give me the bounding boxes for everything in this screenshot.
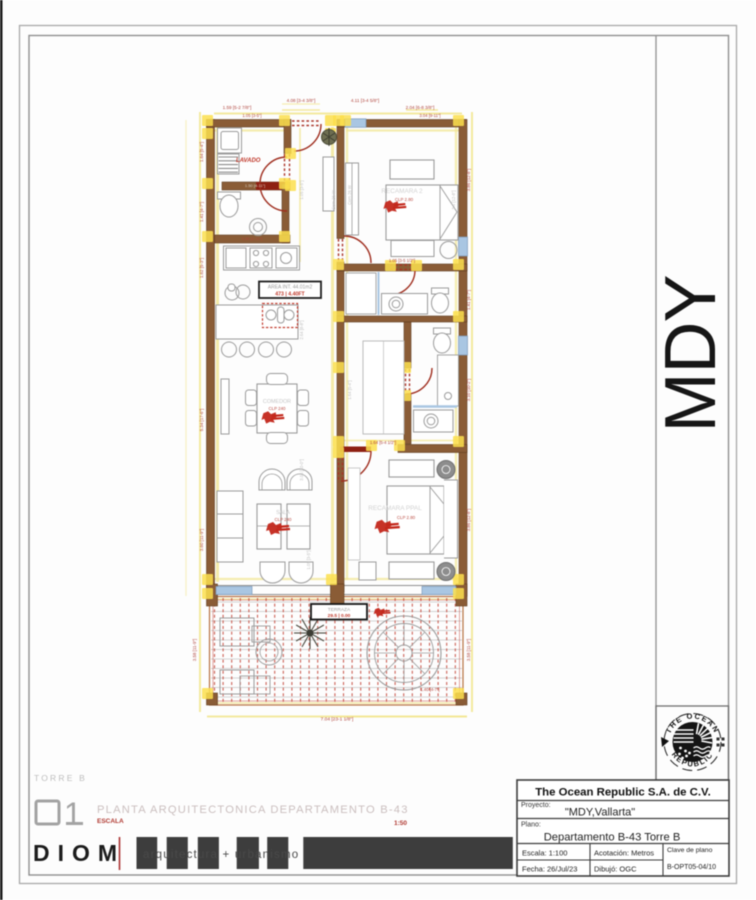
svg-text:DIOM: DIOM [33, 840, 125, 866]
svg-text:CLP 240: CLP 240 [268, 406, 286, 411]
svg-text:B-OPT05-04/10: B-OPT05-04/10 [667, 864, 716, 871]
svg-text:RECAMARA 2: RECAMARA 2 [381, 188, 423, 195]
svg-text:TORRE B: TORRE B [34, 773, 87, 783]
svg-text:Clave de plano: Clave de plano [667, 847, 713, 854]
svg-text:4.08 [3-4 3/8"]: 4.08 [3-4 3/8"] [287, 98, 316, 103]
svg-text:COMEDOR: COMEDOR [263, 399, 291, 405]
svg-text:473 | 4.40FT: 473 | 4.40FT [275, 292, 305, 298]
svg-text:ESCALA: ESCALA [97, 818, 124, 825]
svg-text:1: 1 [64, 796, 82, 832]
svg-text:3.05 [10-0"]: 3.05 [10-0"] [299, 459, 304, 481]
svg-text:1.64 [5-4"]: 1.64 [5-4"] [347, 380, 352, 399]
svg-text:Com 26 W: Com 26 W [347, 185, 352, 205]
svg-text:1.41 [4-7"]: 1.41 [4-7"] [466, 290, 471, 310]
svg-text:"MDY,Vallarta": "MDY,Vallarta" [565, 807, 635, 819]
svg-text:2.64 [8-8"]: 2.64 [8-8"] [299, 320, 304, 339]
svg-text:CLP 2.80: CLP 2.80 [397, 515, 416, 520]
svg-text:3.6 [12-8"]: 3.6 [12-8"] [451, 190, 456, 209]
svg-text:Departamento B-43 Torre B: Departamento B-43 Torre B [544, 832, 681, 844]
svg-text:Acotación: Metros: Acotación: Metros [594, 849, 654, 858]
svg-text:Com 26 W: Com 26 W [331, 190, 336, 210]
svg-text:LAVADO: LAVADO [236, 158, 261, 164]
svg-text:4.11 [3-4 5/8"]: 4.11 [3-4 5/8"] [351, 98, 379, 103]
svg-text:1.40 [4-7"]: 1.40 [4-7"] [420, 687, 439, 692]
svg-text:TERRAZA: TERRAZA [328, 607, 351, 613]
svg-text:1.64 [5-4 1/2"]: 1.64 [5-4 1/2"] [370, 440, 396, 445]
svg-text:1.50 [4-11"]: 1.50 [4-11"] [245, 183, 265, 188]
svg-text:0.90 [2-11"]: 0.90 [2-11"] [242, 236, 262, 241]
svg-text:3.86 [12-8"]: 3.86 [12-8"] [466, 509, 471, 532]
svg-text:MDY: MDY [651, 276, 731, 433]
svg-text:3.04 [9-11"]: 3.04 [9-11"] [419, 113, 440, 118]
svg-text:1.05 [3-5"]: 1.05 [3-5"] [306, 550, 311, 569]
svg-text:arquitectura + urbanismo: arquitectura + urbanismo [143, 849, 299, 861]
svg-text:3.58 [11-9"]: 3.58 [11-9"] [466, 639, 471, 661]
svg-text:3.58 [11-9"]: 3.58 [11-9"] [192, 639, 197, 661]
svg-text:1.05 [3-5"]: 1.05 [3-5"] [299, 180, 304, 199]
svg-text:1:50: 1:50 [394, 820, 407, 827]
svg-text:PLANTA ARQUITECTONICA DEPARTAM: PLANTA ARQUITECTONICA DEPARTAMENTO B-43 [97, 804, 409, 816]
svg-text:RECAMARA PPAL: RECAMARA PPAL [368, 505, 422, 512]
svg-text:3.10 [10-2"]: 3.10 [10-2"] [466, 379, 471, 402]
svg-text:Proyecto:: Proyecto: [521, 802, 551, 809]
svg-text:1.05 [3-5 1/2"]: 1.05 [3-5 1/2"] [389, 258, 415, 263]
svg-text:The Ocean Republic S.A. de C.V: The Ocean Republic S.A. de C.V. [535, 787, 711, 799]
svg-text:Escala: 1:100: Escala: 1:100 [522, 849, 567, 858]
svg-text:SALA: SALA [276, 510, 290, 516]
svg-text:AREA INT. 44.01m2: AREA INT. 44.01m2 [268, 285, 313, 291]
svg-text:1.59 [5-2 7/8"]: 1.59 [5-2 7/8"] [223, 105, 252, 110]
svg-text:2.04 [6-8 3/8"]: 2.04 [6-8 3/8"] [406, 105, 435, 110]
svg-text:CLP 2.80: CLP 2.80 [395, 197, 414, 202]
svg-text:Dibujó: OGC: Dibujó: OGC [594, 865, 637, 874]
svg-text:CLP 240: CLP 240 [274, 517, 292, 522]
svg-text:1.64 [5-4"]: 1.64 [5-4"] [199, 142, 204, 162]
svg-text:1.05 [3-5"]: 1.05 [3-5"] [242, 113, 261, 118]
svg-text:5.34 [17-6"]: 5.34 [17-6"] [199, 409, 204, 432]
svg-text:1.62 [5-3"]: 1.62 [5-3"] [199, 258, 204, 278]
svg-text:1.41 [4-7"]: 1.41 [4-7"] [199, 202, 204, 222]
svg-text:29.5 | 0.00: 29.5 | 0.00 [328, 613, 351, 619]
svg-text:Plano:: Plano: [521, 822, 541, 829]
svg-text:3.86 [12-8"]: 3.86 [12-8"] [466, 169, 471, 192]
svg-text:7.04 [23-1 1/8"]: 7.04 [23-1 1/8"] [321, 717, 354, 723]
svg-text:Fecha: 26/Jul/23: Fecha: 26/Jul/23 [522, 865, 577, 874]
svg-text:3.60 [11-9"]: 3.60 [11-9"] [199, 529, 204, 551]
